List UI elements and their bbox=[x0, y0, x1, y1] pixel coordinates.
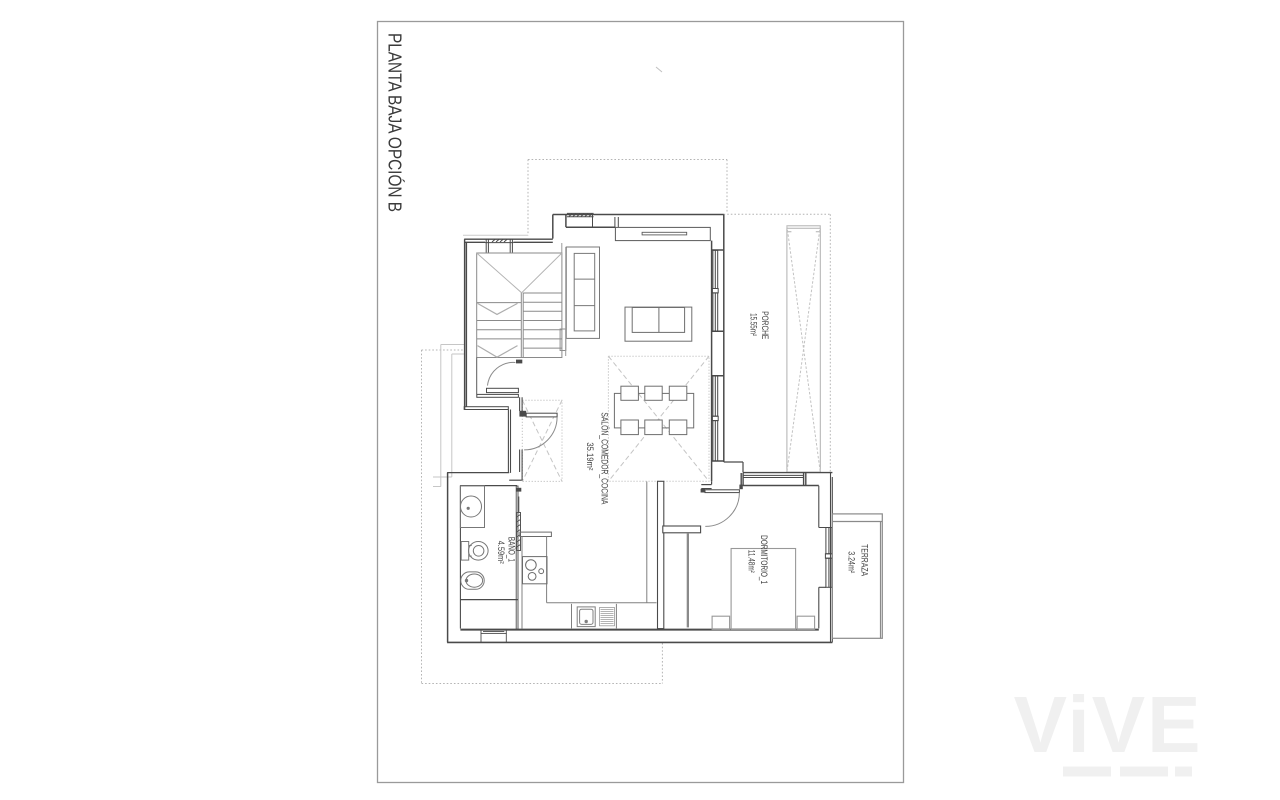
svg-text:BAÑO_1: BAÑO_1 bbox=[507, 537, 518, 562]
svg-text:SALÓN_COMEDOR_COCINA: SALÓN_COMEDOR_COCINA bbox=[598, 412, 609, 504]
svg-text:PORCHE: PORCHE bbox=[760, 311, 771, 339]
svg-text:35.19m²: 35.19m² bbox=[585, 442, 595, 470]
svg-text:4.59m²: 4.59m² bbox=[496, 541, 506, 564]
svg-text:3.24m²: 3.24m² bbox=[847, 551, 857, 573]
svg-text:PLANTA BAJA OPCIÓN B: PLANTA BAJA OPCIÓN B bbox=[385, 33, 406, 212]
svg-text:TERRAZA: TERRAZA bbox=[860, 544, 871, 577]
svg-text:15.55m²: 15.55m² bbox=[749, 313, 759, 336]
svg-text:DORMITORIO_1: DORMITORIO_1 bbox=[759, 535, 770, 584]
svg-text:11.48m²: 11.48m² bbox=[747, 550, 757, 573]
svg-text:ViVE: ViVE bbox=[1014, 680, 1203, 769]
